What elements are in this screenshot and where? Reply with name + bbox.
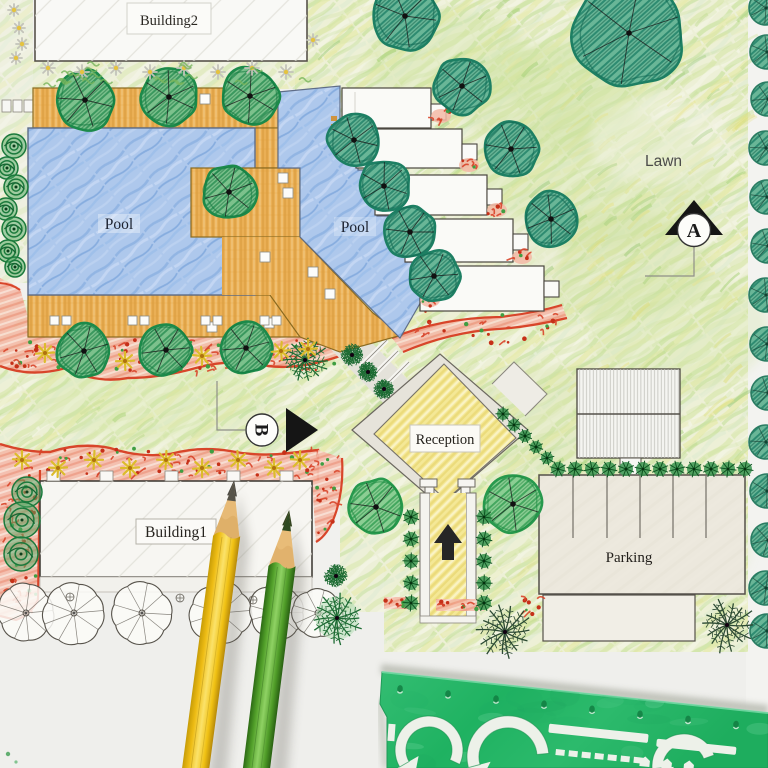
- svg-text:B: B: [251, 424, 272, 437]
- svg-text:Parking: Parking: [606, 550, 653, 566]
- svg-text:Reception: Reception: [416, 432, 476, 448]
- svg-text:Lawn: Lawn: [645, 153, 682, 170]
- svg-text:Pool: Pool: [341, 219, 369, 236]
- svg-text:Building2: Building2: [140, 13, 198, 29]
- svg-text:Building1: Building1: [145, 524, 207, 541]
- svg-text:Pool: Pool: [105, 216, 133, 233]
- svg-text:A: A: [687, 220, 702, 242]
